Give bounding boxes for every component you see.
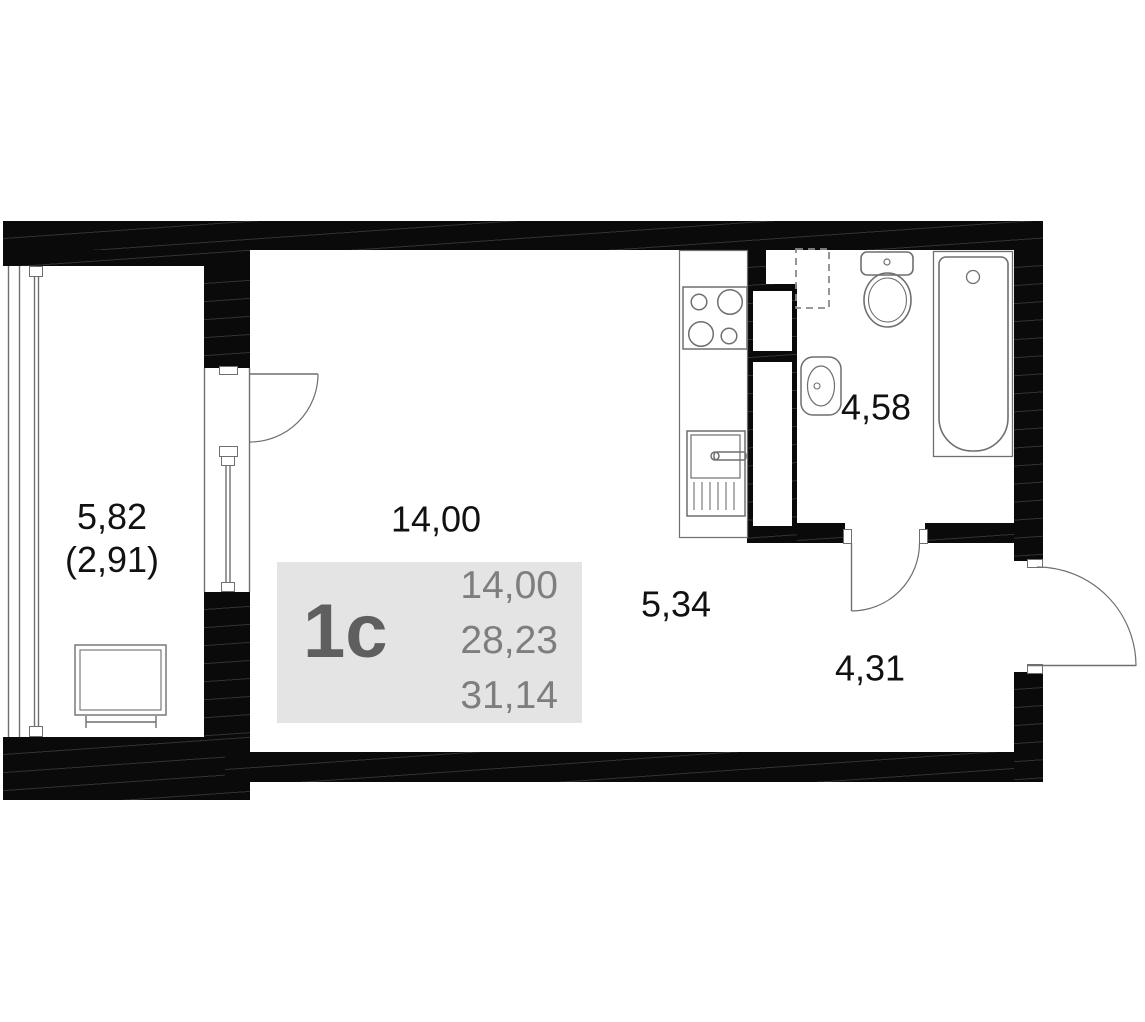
jamb-bathroom-door-right bbox=[919, 529, 928, 544]
unit-areas: 14,00 28,23 31,14 bbox=[460, 558, 558, 723]
balcony-facade-lines bbox=[9, 266, 39, 737]
unit-total-area: 31,14 bbox=[460, 668, 558, 723]
balcony-area-value: 5,82 bbox=[65, 495, 159, 538]
wall-right-upper bbox=[1014, 250, 1043, 561]
wall-bottom bbox=[225, 752, 1043, 782]
cap-balcony-glazing-bottom bbox=[29, 726, 43, 737]
wall-bathroom-bottom-left bbox=[797, 523, 845, 543]
cap-partition-window-bottom bbox=[221, 582, 235, 592]
wall-right-lower bbox=[1014, 672, 1043, 782]
balcony-door bbox=[250, 374, 318, 442]
toilet bbox=[861, 252, 913, 327]
kitchen-sink bbox=[687, 431, 746, 516]
wall-top-left-extension bbox=[3, 250, 250, 266]
bathtub bbox=[934, 252, 1013, 457]
label-kitchen-zone-area: 5,34 bbox=[641, 583, 711, 626]
balcony-partition-outline bbox=[205, 368, 250, 592]
kitchen-counter bbox=[680, 251, 748, 538]
shaft-opening-upper bbox=[753, 291, 792, 351]
bathroom-sink bbox=[801, 357, 841, 415]
floor-plan: 5,82 (2,91) 14,00 5,34 4,31 4,58 1с 14,0… bbox=[0, 0, 1145, 1022]
unit-info-card: 1с 14,00 28,23 31,14 bbox=[277, 562, 582, 723]
vent-shaft-dashed bbox=[796, 249, 829, 308]
wall-balcony-bottom bbox=[3, 737, 250, 800]
unit-type: 1с bbox=[303, 594, 388, 670]
bathroom-floor-notch bbox=[766, 250, 797, 284]
unit-living-area: 14,00 bbox=[460, 558, 558, 613]
label-hallway-area: 4,31 bbox=[835, 647, 905, 690]
wall-top bbox=[3, 221, 1043, 250]
cap-partition-window-top bbox=[221, 456, 235, 466]
jamb-bathroom-door-left bbox=[843, 529, 852, 544]
wall-balcony-partition-bottom bbox=[204, 592, 250, 737]
jamb-balcony-door-top bbox=[219, 366, 238, 375]
label-living-room-area: 14,00 bbox=[391, 498, 481, 541]
shaft-opening-lower bbox=[753, 362, 792, 526]
balcony-window-unit bbox=[75, 645, 166, 728]
plan-linework bbox=[0, 0, 1145, 1022]
label-bathroom-area: 4,58 bbox=[841, 386, 911, 429]
balcony-area-reduced-value: (2,91) bbox=[65, 538, 159, 581]
cap-balcony-glazing-top bbox=[29, 266, 43, 277]
unit-floor-area: 28,23 bbox=[460, 613, 558, 668]
bathroom-door bbox=[852, 543, 920, 611]
label-balcony-area: 5,82 (2,91) bbox=[65, 495, 159, 581]
jamb-entry-door-top bbox=[1027, 559, 1043, 568]
wall-bathroom-bottom-right bbox=[925, 523, 1014, 543]
wall-shaft-assembly bbox=[747, 250, 797, 543]
stove bbox=[683, 287, 747, 349]
entry-door bbox=[1028, 567, 1136, 666]
jamb-entry-door-bottom bbox=[1027, 664, 1043, 674]
wall-balcony-partition-top bbox=[204, 266, 250, 368]
